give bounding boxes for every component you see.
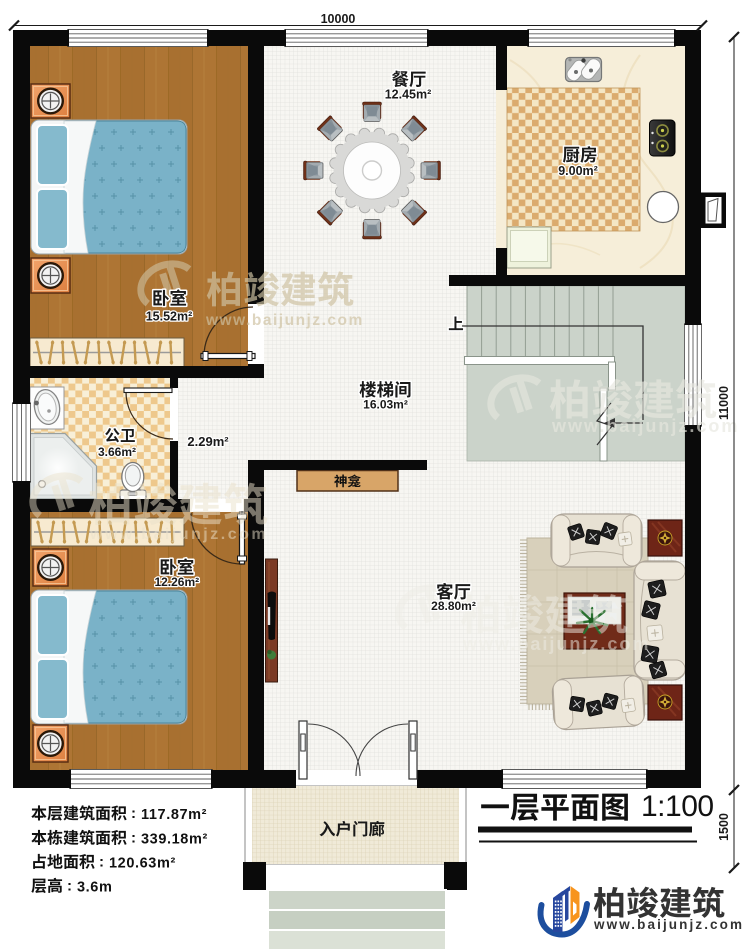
svg-text:16.03m²: 16.03m²	[363, 398, 408, 412]
svg-text:www.baijunjz.com: www.baijunjz.com	[89, 526, 268, 543]
svg-text:339.18m²: 339.18m²	[141, 832, 208, 848]
svg-text:www.baijunjz.com: www.baijunjz.com	[593, 917, 744, 932]
svg-text::: :	[99, 854, 104, 871]
svg-text:117.87m²: 117.87m²	[141, 807, 207, 823]
svg-text:www.baijunjz.com: www.baijunjz.com	[462, 634, 650, 654]
svg-text:3.6m: 3.6m	[77, 880, 112, 896]
svg-text:12.45m²: 12.45m²	[385, 88, 432, 102]
svg-text:9.00m²: 9.00m²	[558, 164, 598, 178]
svg-text:3.66m²: 3.66m²	[98, 445, 136, 459]
svg-text:11000: 11000	[717, 386, 731, 420]
svg-text:2.29m²: 2.29m²	[187, 434, 229, 449]
svg-text:10000: 10000	[321, 12, 356, 26]
svg-text:www.baijunjz.com: www.baijunjz.com	[205, 312, 364, 329]
svg-text::: :	[131, 805, 136, 822]
svg-text:12.26m²: 12.26m²	[154, 575, 199, 589]
svg-text:15.52m²: 15.52m²	[146, 310, 193, 324]
svg-text:1:100: 1:100	[641, 790, 714, 823]
svg-text:1500: 1500	[717, 813, 731, 841]
svg-text:120.63m²: 120.63m²	[109, 856, 176, 872]
svg-text:www.baijunjz.com: www.baijunjz.com	[551, 416, 739, 436]
svg-text::: :	[67, 878, 72, 895]
svg-text:28.80m²: 28.80m²	[431, 599, 476, 613]
svg-text::: :	[131, 830, 136, 847]
